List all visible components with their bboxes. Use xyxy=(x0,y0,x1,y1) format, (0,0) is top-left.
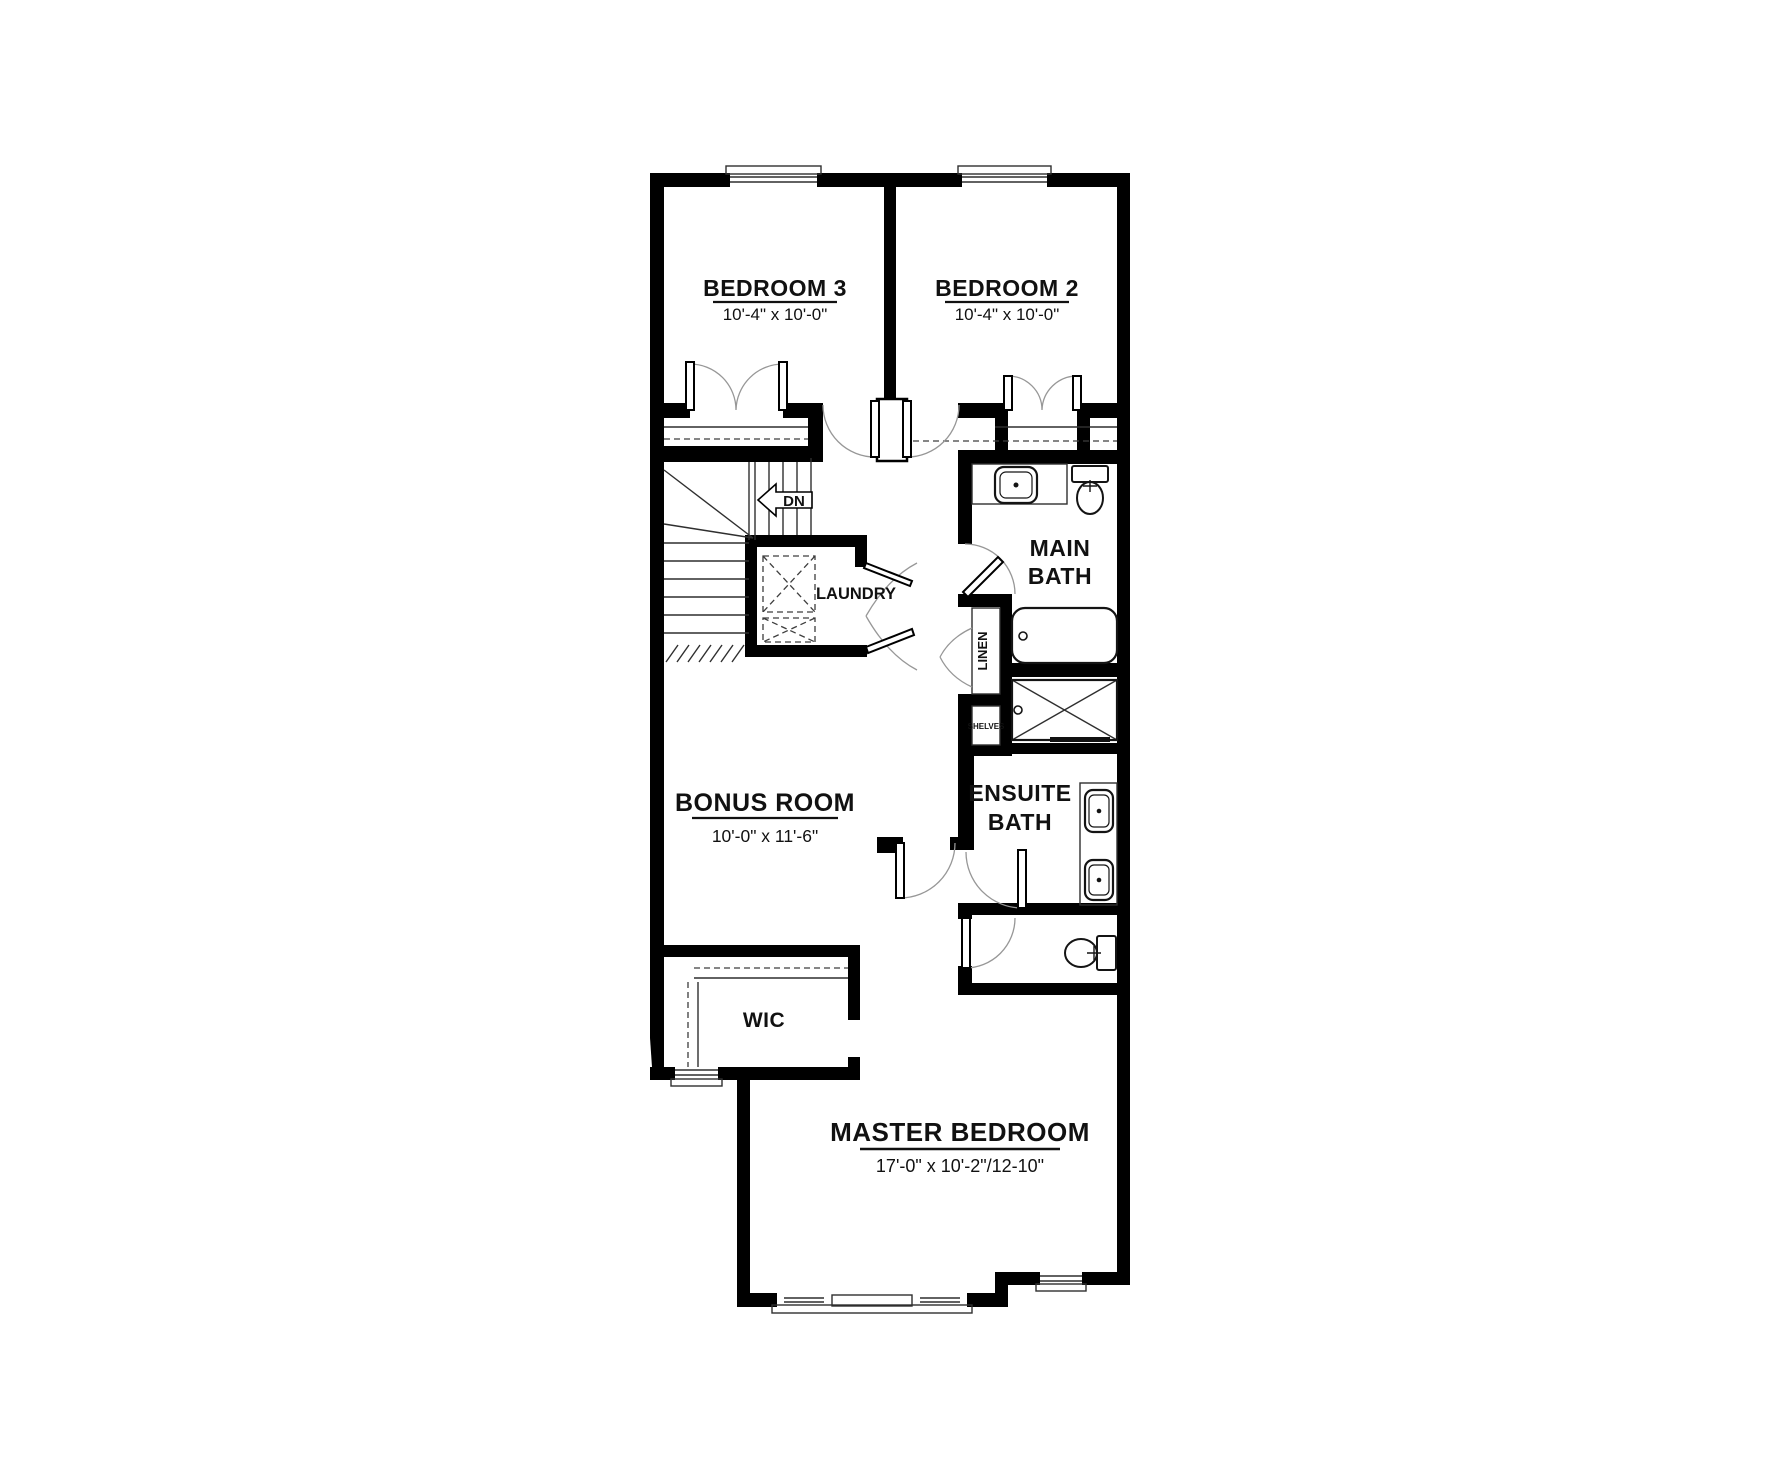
floor-plan-drawing: BEDROOM 3 10'-4" x 10'-0" BEDROOM 2 10'-… xyxy=(0,0,1780,1480)
master-bedroom-label: MASTER BEDROOM xyxy=(830,1117,1090,1147)
wc-toilet-icon xyxy=(1065,936,1116,970)
ensuite-label-line1: ENSUITE xyxy=(968,780,1071,806)
ensuite-label-line2: BATH xyxy=(988,809,1052,835)
bedroom2-label: BEDROOM 2 xyxy=(935,275,1079,301)
laundry-door-leaf-upper xyxy=(864,563,912,586)
shelves-label: SHELVES xyxy=(968,722,1005,731)
bonus-room-dims: 10'-0" x 11'-6" xyxy=(712,826,818,846)
linen-label: LINEN xyxy=(975,632,990,671)
bedroom3-door-arc xyxy=(823,405,875,457)
dn-label: DN xyxy=(783,493,805,510)
bedroom3-dims: 10'-4" x 10'-0" xyxy=(723,305,828,324)
closet2-door-arcs xyxy=(1008,376,1077,410)
main-bath-label-line1: MAIN xyxy=(1030,535,1091,561)
bonus-room-label: BONUS ROOM xyxy=(675,789,855,817)
bathtub-icon xyxy=(1012,608,1117,663)
bedroom2-dims: 10'-4" x 10'-0" xyxy=(955,305,1060,324)
wc-door-arc xyxy=(965,918,1015,968)
washer-dryer-icon xyxy=(763,556,815,642)
main-bath-sink-icon xyxy=(995,467,1037,503)
wic-label: WIC xyxy=(743,1009,785,1032)
master-bedroom-dims: 17'-0" x 10'-2"/12-10" xyxy=(876,1156,1044,1176)
linen-door-arcs xyxy=(940,628,972,687)
closet3-door-arcs xyxy=(690,364,783,410)
master-door-arc xyxy=(900,843,955,898)
bedroom3-label: BEDROOM 3 xyxy=(703,275,847,301)
ensuite-sink2-icon xyxy=(1085,860,1113,900)
main-bath-toilet-icon xyxy=(1072,466,1108,514)
ensuite-sink1-icon xyxy=(1085,790,1113,832)
floor-plan-page: BEDROOM 3 10'-4" x 10'-0" BEDROOM 2 10'-… xyxy=(0,0,1780,1480)
main-bath-label-line2: BATH xyxy=(1028,563,1092,589)
ensuite-door-arc xyxy=(966,852,1022,908)
laundry-label: LAUNDRY xyxy=(816,585,896,603)
bedroom2-door-arc xyxy=(907,405,959,457)
main-bath-door-leaf xyxy=(963,557,1003,597)
